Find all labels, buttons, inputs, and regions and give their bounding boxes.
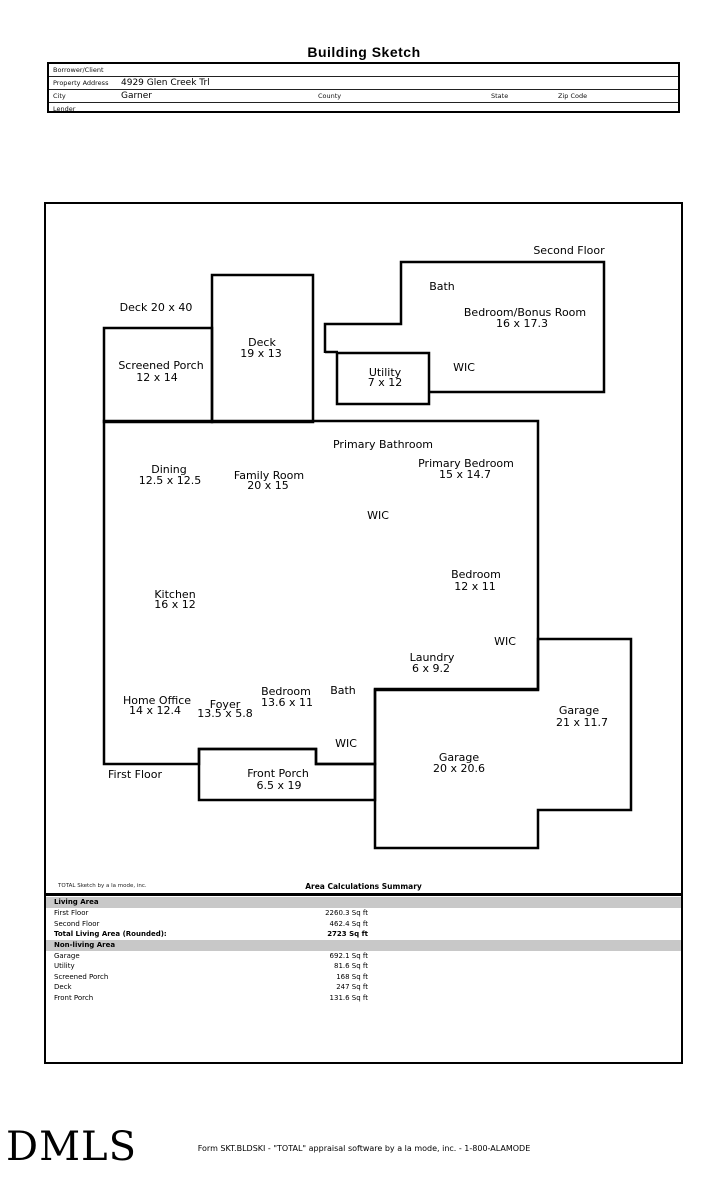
area-summary-row: Utility81.6 Sq ft (46, 961, 681, 972)
area-summary-title: Area Calculations Summary (46, 882, 681, 891)
room-label: 13.6 x 11 (261, 697, 313, 709)
room-label: WIC (453, 362, 475, 374)
room-label: 12 x 14 (136, 372, 178, 384)
room-label: 16 x 12 (154, 599, 196, 611)
area-row-label: Non-living Area (54, 941, 115, 949)
room-label: WIC (335, 738, 357, 750)
form-row-city: City Garner County State Zip Code (49, 90, 678, 103)
room-label: Bath (429, 281, 455, 293)
room-label: 12.5 x 12.5 (139, 475, 202, 487)
room-label: 14 x 12.4 (129, 705, 181, 717)
form-footer-text: Form SKT.BLDSKI - "TOTAL" appraisal soft… (0, 1144, 728, 1153)
area-row-value: 168 Sq ft (46, 972, 368, 983)
room-label: 13.5 x 5.8 (197, 708, 253, 720)
area-row-value: 2723 Sq ft (46, 929, 368, 940)
room-label: 12 x 11 (454, 581, 496, 593)
room-label: WIC (367, 510, 389, 522)
room-label: 20 x 20.6 (433, 763, 485, 775)
area-summary-row: Screened Porch168 Sq ft (46, 972, 681, 983)
room-label: 15 x 14.7 (439, 469, 491, 481)
room-label: 7 x 12 (368, 377, 403, 389)
room-label: WIC (494, 636, 516, 648)
room-label: 21 x 11.7 (556, 717, 608, 729)
city-label: City (53, 92, 66, 100)
building-sketch-canvas: Second FloorBathBedroom/Bonus Room16 x 1… (44, 202, 683, 1064)
area-row-value: 462.4 Sq ft (46, 919, 368, 930)
area-summary-row: First Floor2260.3 Sq ft (46, 908, 681, 919)
room-label: First Floor (108, 769, 162, 781)
area-row-value: 131.6 Sq ft (46, 993, 368, 1004)
room-label: Bath (330, 685, 356, 697)
area-row-value: 692.1 Sq ft (46, 951, 368, 962)
room-label: 6 x 9.2 (412, 663, 450, 675)
area-row-value: 2260.3 Sq ft (46, 908, 368, 919)
page-title: Building Sketch (0, 44, 728, 60)
area-summary-divider (46, 893, 681, 896)
form-row-lender: Lender (49, 103, 678, 113)
area-summary-row: Front Porch131.6 Sq ft (46, 993, 681, 1004)
area-row-value: 81.6 Sq ft (46, 961, 368, 972)
form-row-property-address: Property Address 4929 Glen Creek Trl (49, 77, 678, 90)
form-row-borrower: Borrower/Client (49, 64, 678, 77)
property-address-value: 4929 Glen Creek Trl (121, 78, 210, 88)
room-label: 19 x 13 (240, 348, 282, 360)
area-summary-band: Non-living Area (46, 940, 681, 951)
state-label: State (491, 92, 508, 100)
area-summary-band: Living Area (46, 897, 681, 908)
zip-code-label: Zip Code (558, 92, 587, 100)
room-label: 20 x 15 (247, 480, 289, 492)
lender-label: Lender (53, 105, 75, 113)
room-label: 16 x 17.3 (496, 318, 548, 330)
area-summary-total: Total Living Area (Rounded):2723 Sq ft (46, 929, 681, 940)
area-row-label: Living Area (54, 898, 99, 906)
area-summary-row: Second Floor462.4 Sq ft (46, 919, 681, 930)
room-label: Primary Bathroom (333, 439, 433, 451)
city-value: Garner (121, 91, 152, 101)
property-address-label: Property Address (53, 79, 108, 87)
property-info-form: Borrower/Client Property Address 4929 Gl… (47, 62, 680, 113)
area-summary-row: Garage692.1 Sq ft (46, 951, 681, 962)
area-summary-table: Living AreaFirst Floor2260.3 Sq ftSecond… (46, 897, 681, 1003)
room-label: 6.5 x 19 (257, 780, 302, 792)
county-label: County (318, 92, 341, 100)
room-label: Second Floor (533, 245, 604, 257)
room-label: Deck 20 x 40 (120, 302, 193, 314)
borrower-label: Borrower/Client (53, 66, 104, 74)
area-summary-row: Deck247 Sq ft (46, 982, 681, 993)
area-row-value: 247 Sq ft (46, 982, 368, 993)
